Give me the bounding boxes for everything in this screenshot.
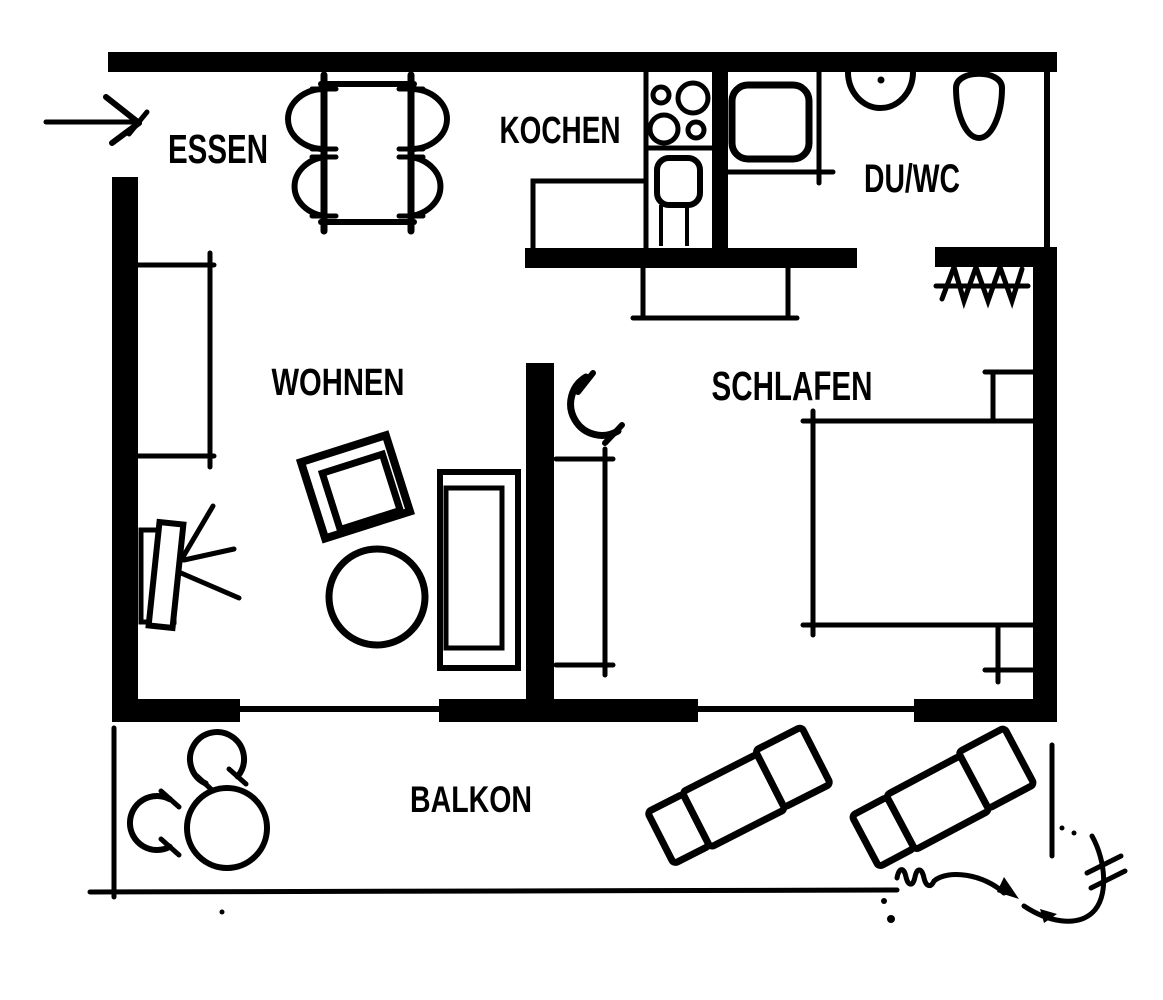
nightstand-icon bbox=[985, 625, 1033, 682]
top-wall bbox=[108, 52, 1057, 72]
wohnen-window-line bbox=[240, 706, 439, 712]
corridor-elements bbox=[571, 268, 797, 443]
nightstand-icon bbox=[985, 372, 1033, 421]
bedroom-furniture bbox=[556, 372, 1033, 682]
dining-chair-icon bbox=[411, 157, 440, 216]
balcony-rail-bottom bbox=[90, 890, 897, 892]
room-label-duwc: DU/WC bbox=[864, 157, 960, 201]
bed-icon bbox=[803, 411, 1033, 635]
sofa-icon bbox=[440, 472, 518, 668]
balcony-chair-icon bbox=[190, 732, 246, 791]
living-room-furniture bbox=[138, 253, 518, 668]
balcony-chair-icon bbox=[130, 791, 179, 855]
chair-armrest-ticks bbox=[312, 89, 423, 216]
room-label-kochen: KOCHEN bbox=[500, 110, 621, 152]
dining-table-icon bbox=[288, 75, 447, 231]
kitchen-counter-line bbox=[533, 181, 646, 248]
sun-lounger-icon bbox=[849, 728, 1035, 869]
room-label-essen: ESSEN bbox=[168, 126, 268, 172]
kitchen-fixtures bbox=[533, 72, 712, 248]
kitchen-sink-icon bbox=[657, 158, 700, 205]
bottom-wall-segment-left bbox=[112, 699, 240, 722]
dining-chair-icon bbox=[295, 157, 324, 216]
shelf-icon bbox=[138, 253, 214, 467]
right-wall bbox=[1033, 247, 1057, 722]
toilet-icon bbox=[956, 74, 1002, 138]
door-swing-icon bbox=[571, 373, 622, 443]
kitchen-bottom-wall bbox=[525, 248, 857, 268]
shower-icon bbox=[732, 85, 809, 159]
schlafen-window-line bbox=[698, 706, 914, 712]
coffee-table-icon bbox=[329, 549, 425, 645]
left-wall bbox=[112, 177, 138, 722]
scribble-arrowhead bbox=[997, 877, 1019, 899]
kitchen-side-wall bbox=[712, 72, 728, 250]
sun-lounger-icon bbox=[645, 727, 832, 866]
room-label-schlafen: SCHLAFEN bbox=[712, 363, 873, 409]
floorplan-page: ESSEN KOCHEN DU/WC WOHNEN SCHLAFEN BALKO… bbox=[0, 0, 1163, 1000]
entrance-arrow-icon bbox=[46, 97, 147, 143]
balcony-table-icon bbox=[187, 788, 267, 868]
room-label-wohnen: WOHNEN bbox=[272, 362, 405, 404]
stove-icon bbox=[650, 83, 708, 143]
wardrobe-icon bbox=[556, 449, 613, 675]
sideboard-icon bbox=[633, 268, 797, 318]
floorplan-canvas: ESSEN KOCHEN DU/WC WOHNEN SCHLAFEN BALKO… bbox=[0, 0, 1163, 1000]
bottom-wall-segment-middle bbox=[439, 699, 698, 722]
dining-chair-icon bbox=[288, 89, 324, 149]
dining-chair-icon bbox=[411, 89, 447, 149]
armchair-icon bbox=[301, 435, 410, 538]
balcony-elements bbox=[90, 727, 1052, 897]
living-bedroom-partition-wall bbox=[526, 363, 554, 722]
tv-icon bbox=[149, 522, 184, 628]
washbasin-tap-dot bbox=[878, 77, 885, 84]
tv-signal-rays bbox=[180, 506, 239, 598]
coat-rack-icon bbox=[936, 267, 1028, 301]
room-label-balkon: BALKON bbox=[410, 779, 532, 820]
